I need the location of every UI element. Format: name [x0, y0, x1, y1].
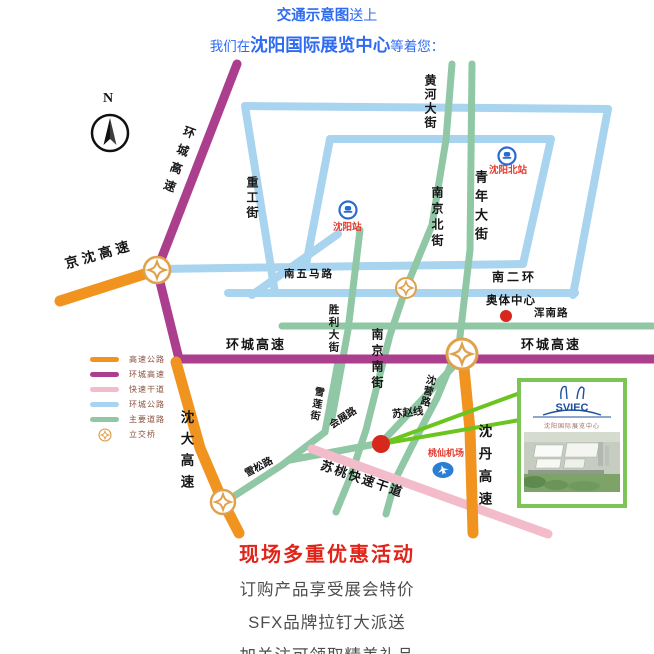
legend-swatch-expressway — [90, 357, 119, 362]
label-shenyang-north-station: 沈阳北站 — [489, 166, 527, 176]
legend-label: 环城高速 — [129, 369, 165, 380]
compass-n-label: N — [103, 92, 113, 106]
legend-swatch-ring-road — [90, 402, 119, 407]
legend-swatch-fast-road — [90, 387, 119, 392]
label-zhonggong-street: 重工街 — [246, 176, 258, 221]
map-legend: 高速公路 环城高速 快速干道 环城公路 主要道路 立交桥 — [90, 352, 165, 442]
promo-line-2: SFX品牌拉钉大派送 — [0, 609, 654, 633]
sviec-name: 沈阳国际展览中心 — [521, 421, 623, 430]
label-nanerhuan: 南二环 — [492, 271, 537, 283]
road-inner-right — [523, 139, 551, 264]
promo-line-1: 订购产品享受展会特价 — [0, 576, 654, 600]
shenyang-north-station-icon — [499, 148, 516, 165]
compass-icon — [92, 115, 128, 151]
sviec-venue-card: SVIEC 沈阳国际展览中心 — [517, 378, 627, 508]
label-hunnan-road: 浑南路 — [534, 308, 569, 319]
road-xuelian-xuesong — [225, 362, 338, 502]
legend-row-expressway: 高速公路 — [90, 352, 165, 367]
label-shendan-expressway: 沈丹高速 — [477, 424, 491, 514]
promo-title: 现场多重优惠活动 — [0, 538, 654, 567]
legend-row-fast-road: 快速干道 — [90, 382, 165, 397]
legend-swatch-main-road — [90, 417, 119, 422]
legend-label: 快速干道 — [129, 384, 165, 395]
road-outer-right — [573, 109, 608, 295]
label-huanghe-street: 黄河大街 — [424, 74, 436, 130]
legend-label: 环城公路 — [129, 399, 165, 410]
airport-icon — [432, 462, 454, 479]
road-jingshen-expressway — [60, 270, 157, 301]
ring-road-network — [158, 106, 608, 295]
aoti-center-marker — [500, 310, 512, 322]
legend-label: 高速公路 — [129, 354, 165, 365]
label-qingnian-street: 青年大街 — [474, 170, 487, 246]
exhibition-center-marker — [372, 435, 390, 453]
label-nanwuma-road: 南五马路 — [284, 269, 334, 280]
interchange-icon-nanerhuan — [396, 278, 416, 298]
legend-row-ring-expressway: 环城高速 — [90, 367, 165, 382]
label-shenyang-station: 沈阳站 — [333, 223, 362, 233]
legend-interchange-icon — [90, 428, 119, 442]
legend-row-main-road: 主要道路 — [90, 412, 165, 427]
legend-label: 主要道路 — [129, 414, 165, 425]
legend-row-interchange: 立交桥 — [90, 427, 165, 442]
sviec-photo — [524, 432, 620, 492]
interchange-icon-jingshen — [144, 257, 170, 283]
promo-line-3: 加关注可领取精美礼品 — [0, 642, 654, 654]
label-shenda-expressway: 沈大高速 — [179, 410, 193, 496]
legend-swatch-ring-expressway — [90, 372, 119, 377]
legend-label: 立交桥 — [129, 429, 156, 440]
label-taoxian-airport: 桃仙机场 — [428, 449, 464, 458]
sviec-logo-text: SVIEC — [555, 402, 588, 414]
label-nanjing-south-street: 南京南街 — [371, 328, 383, 392]
interchange-icon-huancheng — [447, 339, 477, 369]
label-huancheng-expressway-right: 环城高速 — [521, 338, 581, 351]
label-nanjing-north-street: 南京北街 — [431, 186, 443, 250]
interchange-icon-shenda — [211, 490, 235, 514]
sviec-logo: SVIEC — [521, 383, 623, 423]
legend-row-ring-road: 环城公路 — [90, 397, 165, 412]
shenyang-station-icon — [340, 202, 357, 219]
label-aoti-center: 奥体中心 — [486, 296, 536, 308]
label-huancheng-expressway-left: 环城高速 — [226, 338, 286, 351]
promo-footer: 现场多重优惠活动 订购产品享受展会特价 SFX品牌拉钉大派送 加关注可领取精美礼… — [0, 538, 654, 654]
traffic-map-page: 交通示意图送上 我们在沈阳国际展览中心等着您： — [0, 0, 654, 654]
label-shengli-street: 胜利大街 — [328, 304, 339, 354]
